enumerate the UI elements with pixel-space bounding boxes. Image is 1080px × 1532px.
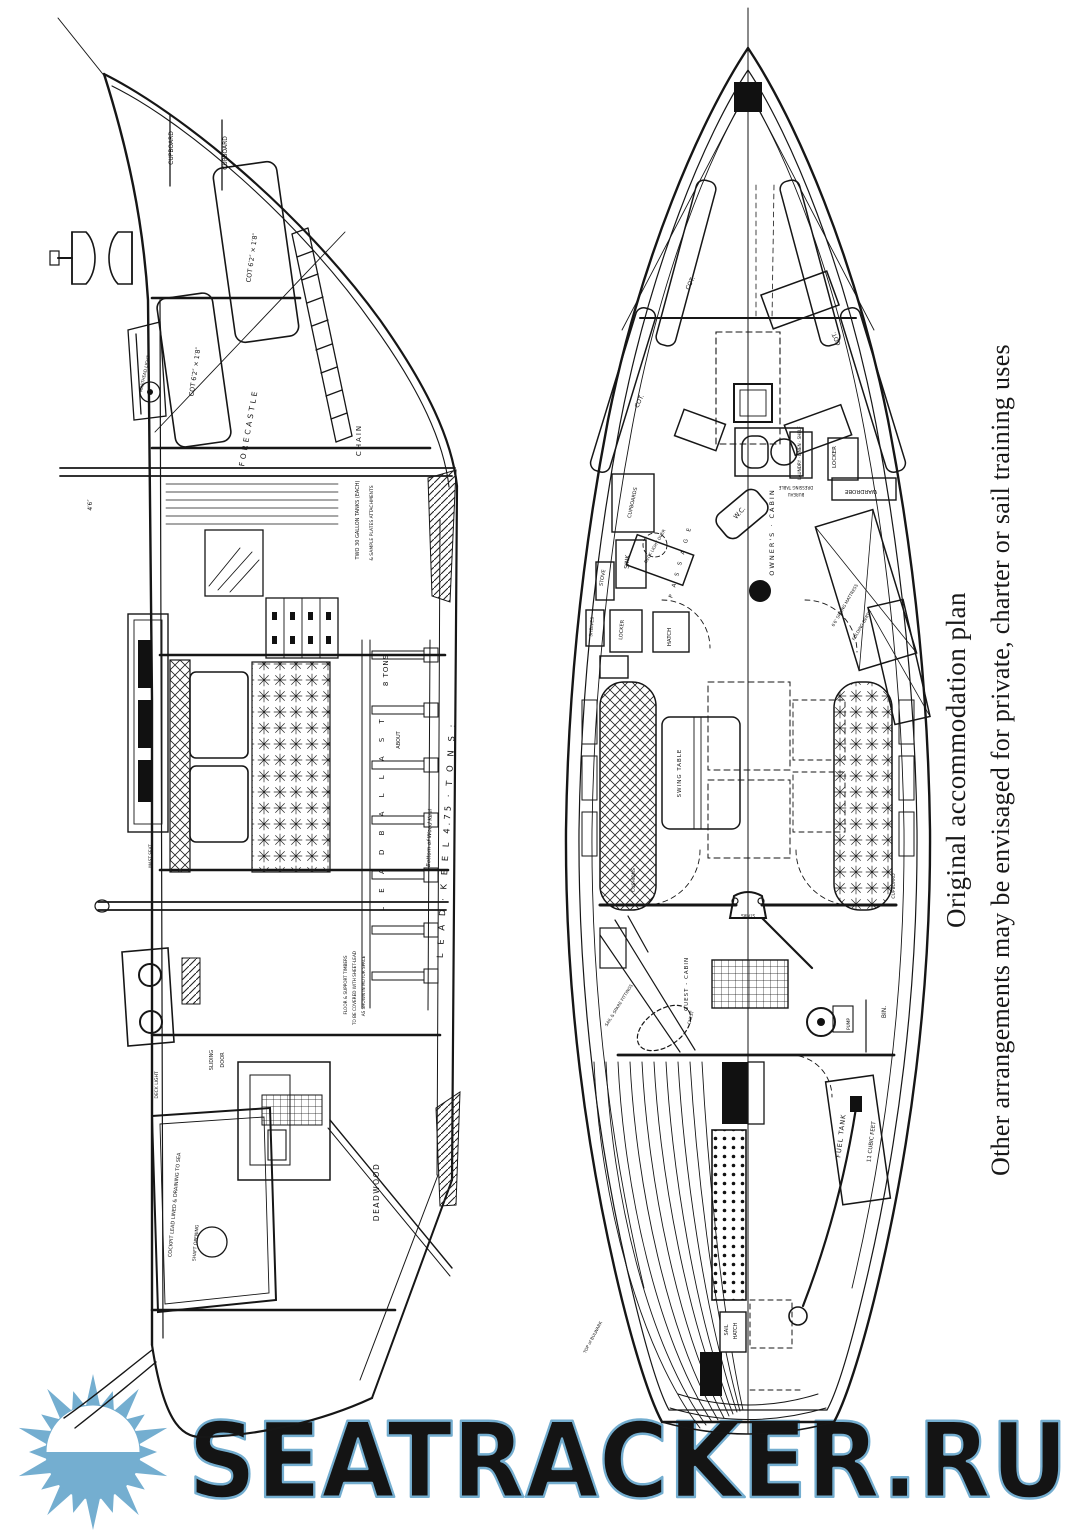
diagram-label: P A S S A G E — [668, 525, 693, 599]
diagram-label: CUPBOARD — [891, 873, 897, 899]
diagram-label: TWO 30 GALLON TANKS (EACH) — [355, 480, 361, 560]
caption-line-2: Other arrangements may be envisaged for … — [979, 235, 1023, 1285]
diagram-label: LOCKER — [832, 446, 838, 468]
diagram-label: LAUNDRY · LINEN · SHELF — [797, 426, 802, 480]
stove-flue — [749, 580, 771, 602]
diagram-label: SAIL — [724, 1324, 730, 1335]
diagram-label: CUSHIONS — [631, 868, 637, 892]
diagram-label: SINK — [623, 554, 631, 570]
saloon-skylight — [128, 614, 168, 832]
diagram-label: COT 6′2″ × 1′8″ — [245, 232, 260, 283]
diagram-label: TO BE COVERED WITH SHEET-LEAD — [352, 951, 357, 1026]
washbasin-unit — [735, 428, 803, 476]
diagram-label: L E A D B A L L A S T — [378, 713, 386, 911]
diagram-label: COT 6′2″ × 1′8″ — [188, 346, 203, 397]
diagram-label: COCKPIT LEAD LINED & DRAINING TO SEA — [167, 1152, 182, 1258]
diagram-label: W.C. — [732, 505, 748, 521]
diagram-label: DEADWOOD — [372, 1163, 381, 1221]
diagram-label: & SAMPLE PLATES ATTACHMENTS — [369, 485, 375, 560]
diagram-label: HATCH — [733, 1322, 739, 1339]
diagram-label: CUPBOARD — [222, 136, 229, 170]
diagram-label: COT. — [831, 331, 843, 347]
diagram-label: DECK LIGHT — [154, 1071, 160, 1099]
diagram-label: GUEST - CABIN — [684, 957, 690, 1011]
diagram-label: FUEL TANK — [834, 1113, 847, 1158]
diagram-label: ABOUT — [396, 730, 402, 748]
ship-profile-diagram: CUPBOARDCUPBOARDCOT 6′2″ × 1′8″COT 6′2″ … — [50, 18, 460, 1437]
swing-table — [662, 682, 845, 858]
diagram-label: FLOOR & SUPPORT TIMBERS — [343, 955, 348, 1014]
yacht-plans-drawing: CUPBOARDCUPBOARDCOT 6′2″ × 1′8″COT 6′2″ … — [0, 0, 1080, 1532]
diagram-label: BUREAU — [788, 492, 805, 497]
saloon-joinery — [205, 530, 338, 658]
diagram-label: CUPBOARD — [168, 131, 175, 165]
diagram-label: SAIL & SPARE FITTINGS — [604, 983, 634, 1027]
aft-trunk-portholes — [122, 948, 200, 1046]
diagram-label: CHAIN — [355, 424, 363, 456]
diagram-label: LOCKER — [618, 619, 626, 640]
diagram-label: OWNER'S · CABIN — [768, 488, 776, 575]
diagram-label: AS SHOWN IN MOTOR SPACE — [361, 955, 366, 1016]
diagram-label: Bottom of Wood Keel — [426, 808, 434, 867]
diagram-label: BIN. — [881, 1006, 888, 1018]
diagram-label: FORECASTLE — [237, 388, 260, 467]
diagram-label: SWING TABLE — [677, 749, 683, 798]
diagram-label: COT. — [685, 276, 697, 292]
diagram-label: 8 TONS — [382, 654, 390, 686]
diagram-label: SHELVES — [588, 617, 596, 637]
diagram-label: HATCH — [667, 628, 673, 647]
windlass — [50, 232, 132, 284]
aft-head — [790, 1000, 866, 1097]
diagram-label: MAST SEAT — [148, 844, 153, 868]
ship-deck-plan-diagram: COT.COT.COT.CUPBOARDSSINKSTOVELOCKERSHEL… — [566, 8, 930, 1434]
caption-line-1: Original accommodation plan — [933, 235, 979, 1285]
scanned-yacht-plan-page: SEATRACKER.RU — [0, 0, 1080, 1532]
engine-room — [238, 1062, 452, 1276]
tiller — [789, 1096, 862, 1325]
saloon-berths — [170, 660, 330, 872]
diagram-label: STAIRS — [741, 913, 755, 918]
diagram-label: STOVE — [599, 569, 608, 586]
aft-skylight-grating — [700, 1062, 800, 1396]
diagram-label: 11 CUBIC FEET — [867, 1120, 878, 1162]
diagram-label: SHAFT OPENING — [191, 1224, 200, 1262]
mast — [734, 82, 762, 112]
caption: Original accommodation plan Other arrang… — [933, 235, 1037, 1285]
diagram-label: DOOR — [220, 1052, 226, 1068]
diagram-label: 4′6″ — [87, 499, 94, 511]
diagram-label: CUPBOARDS — [627, 487, 639, 519]
diagram-label: WARDROBE — [844, 488, 877, 494]
diagram-label: SLIDING — [209, 1050, 215, 1070]
cabin-planking — [166, 476, 338, 524]
diagram-label: DRESSING TABLE — [778, 485, 813, 490]
diagram-label: COT. — [634, 394, 646, 410]
diagram-label: PUMP — [846, 1018, 851, 1030]
diagram-label: TOP of BULWARK — [582, 1320, 604, 1355]
